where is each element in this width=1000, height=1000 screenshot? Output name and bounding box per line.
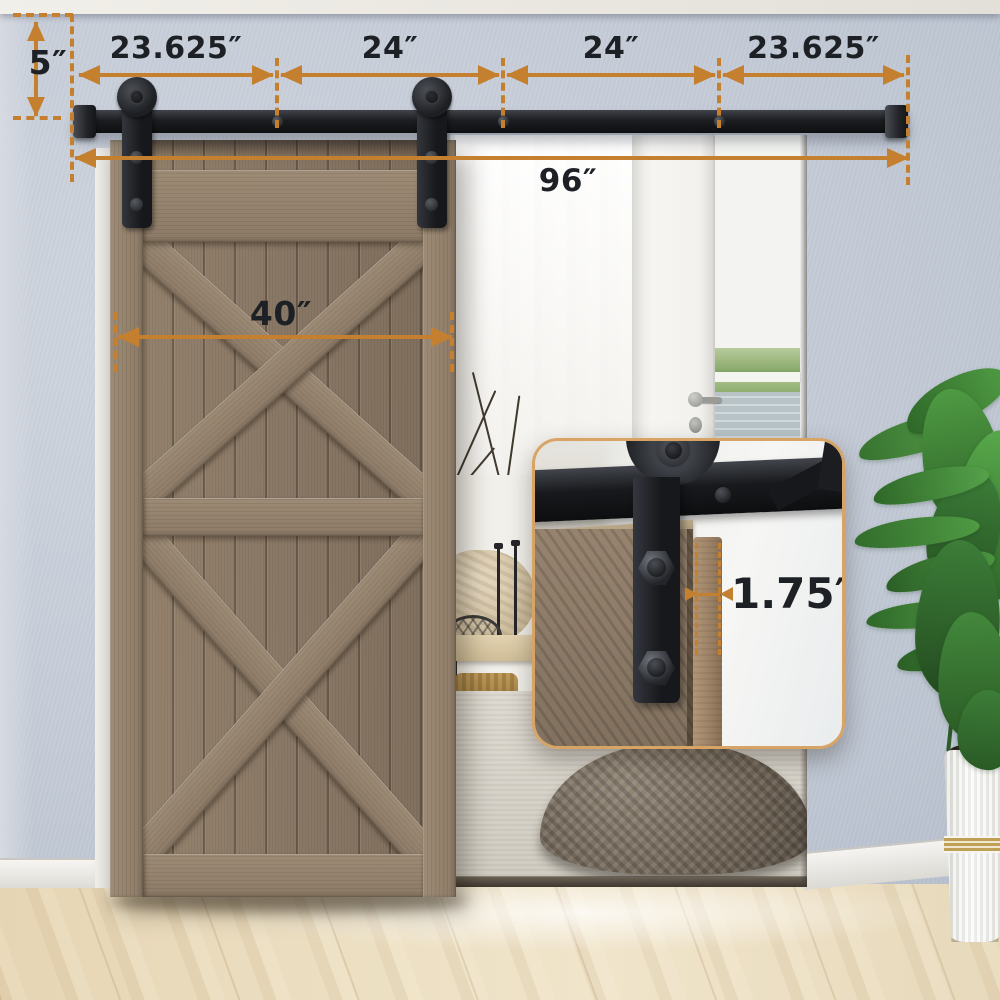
dim-label-segment-1: 23.625″ — [75, 34, 277, 64]
dim-line-segment-1 — [79, 73, 273, 77]
dim-label-door-width: 40″ — [221, 297, 341, 330]
barn-door — [110, 140, 456, 897]
dim-label-track-total: 96″ — [508, 166, 628, 197]
window-mullion — [715, 372, 800, 382]
product-dimension-diagram: 5″ 23.625″ 24″ 24″ 23.625″ 96″ 40″ — [0, 0, 1000, 1000]
window-glass — [715, 135, 800, 445]
lake-water — [715, 392, 800, 438]
dim-line-segment-4 — [723, 73, 904, 77]
arrowhead-icon — [887, 148, 909, 168]
candle-holder — [514, 545, 517, 640]
detail-inset: 1.75″ — [532, 438, 845, 749]
track-rail — [75, 110, 908, 133]
arrowhead-icon — [117, 327, 139, 347]
dim-extension-line — [13, 13, 73, 17]
dim-extension-line — [275, 58, 279, 128]
dim-extension-line — [717, 58, 721, 128]
inset-axle-bolt — [665, 442, 682, 459]
dim-label-segment-2: 24″ — [277, 34, 503, 64]
arrowhead-icon — [685, 587, 698, 601]
tree-line — [715, 348, 800, 372]
opening-threshold — [450, 877, 807, 887]
track-end-cap-right — [885, 105, 908, 138]
wall-left-edge — [0, 0, 34, 900]
arrowhead-icon — [722, 65, 744, 85]
ceiling — [0, 0, 1000, 14]
keyhole-escutcheon — [689, 417, 702, 433]
door-stile-left — [110, 140, 143, 897]
track-end-cap-left — [73, 105, 96, 138]
candle-cup — [511, 540, 520, 546]
tree-line — [715, 382, 800, 392]
door-stile-right — [423, 140, 456, 897]
arrowhead-icon — [27, 21, 45, 41]
roller-hub — [129, 89, 145, 105]
dim-line-segment-3 — [507, 73, 715, 77]
dim-label-top-offset: 5″ — [22, 46, 74, 79]
strap-bolt — [130, 198, 143, 211]
arrowhead-icon — [883, 65, 905, 85]
dim-line-door-width — [118, 335, 452, 339]
dim-line-track-total — [75, 156, 908, 160]
arrowhead-icon — [78, 65, 100, 85]
dim-label-thickness: 1.75″ — [731, 573, 845, 615]
pot-gold-band — [944, 836, 1000, 853]
arrowhead-icon — [694, 65, 716, 85]
dim-line-thickness — [698, 593, 720, 596]
arrowhead-icon — [506, 65, 528, 85]
roller-hub — [424, 89, 440, 105]
inset-bolt-dome — [647, 658, 666, 677]
door-handle-hub — [688, 392, 703, 407]
inset-end-stop — [817, 438, 845, 493]
dim-label-segment-3: 24″ — [503, 34, 719, 64]
inset-rail-bolt — [715, 487, 731, 503]
arrowhead-icon — [27, 97, 45, 117]
strap-bolt — [425, 198, 438, 211]
candle-cup — [494, 543, 503, 549]
arrowhead-icon — [252, 65, 274, 85]
dim-line-segment-2 — [281, 73, 499, 77]
dim-label-segment-4: 23.625″ — [719, 34, 908, 64]
arrowhead-icon — [431, 327, 453, 347]
inset-bolt-dome — [647, 558, 666, 577]
arrowhead-icon — [74, 148, 96, 168]
door-rail-top — [143, 170, 423, 242]
door-rail-bottom — [143, 854, 423, 897]
arrowhead-icon — [280, 65, 302, 85]
arrowhead-icon — [478, 65, 500, 85]
dim-extension-line — [501, 58, 505, 128]
door-rail-middle — [143, 498, 423, 536]
